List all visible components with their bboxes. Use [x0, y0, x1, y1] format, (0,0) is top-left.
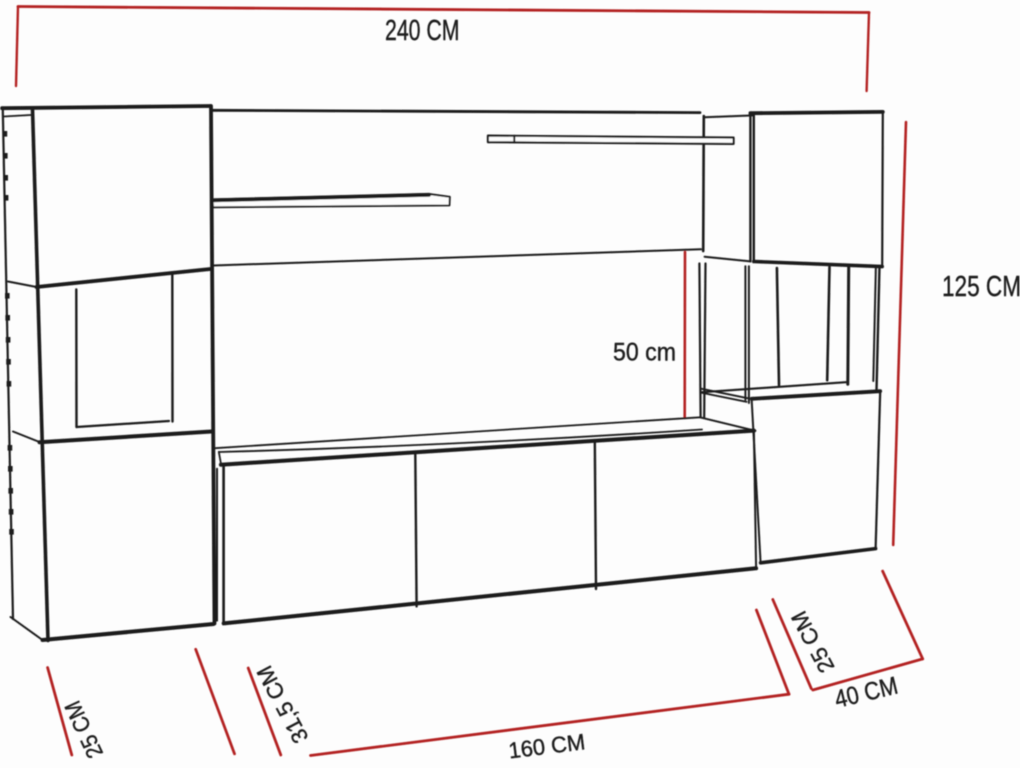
svg-text:25 CM: 25 CM	[59, 697, 108, 762]
svg-text:160 CM: 160 CM	[507, 729, 586, 763]
svg-text:125 CM: 125 CM	[942, 271, 1020, 303]
svg-text:240 CM: 240 CM	[385, 15, 460, 47]
svg-text:25 CM: 25 CM	[786, 607, 839, 677]
svg-text:40 CM: 40 CM	[832, 672, 901, 714]
svg-text:50 cm: 50 cm	[613, 339, 676, 367]
